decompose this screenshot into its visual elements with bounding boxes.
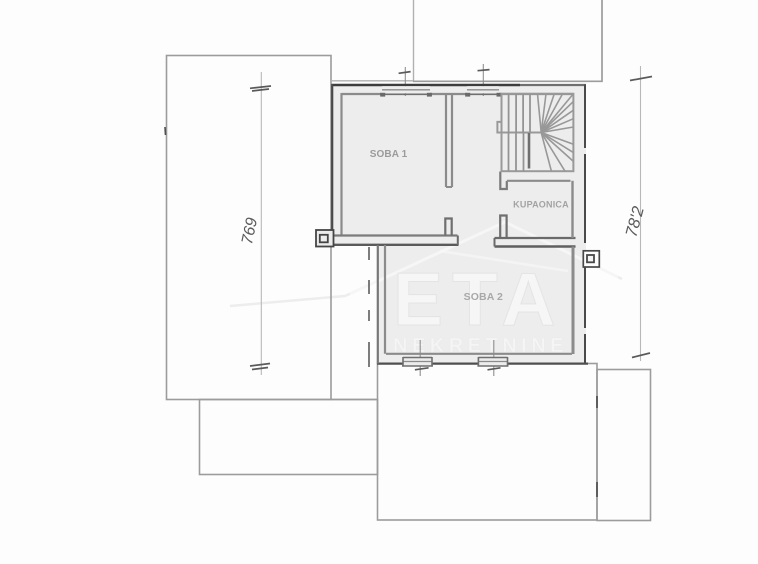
- svg-text:KUPAONICA: KUPAONICA: [513, 200, 569, 210]
- svg-text:SOBA 1: SOBA 1: [370, 149, 408, 160]
- svg-text:SOBA 2: SOBA 2: [464, 291, 503, 303]
